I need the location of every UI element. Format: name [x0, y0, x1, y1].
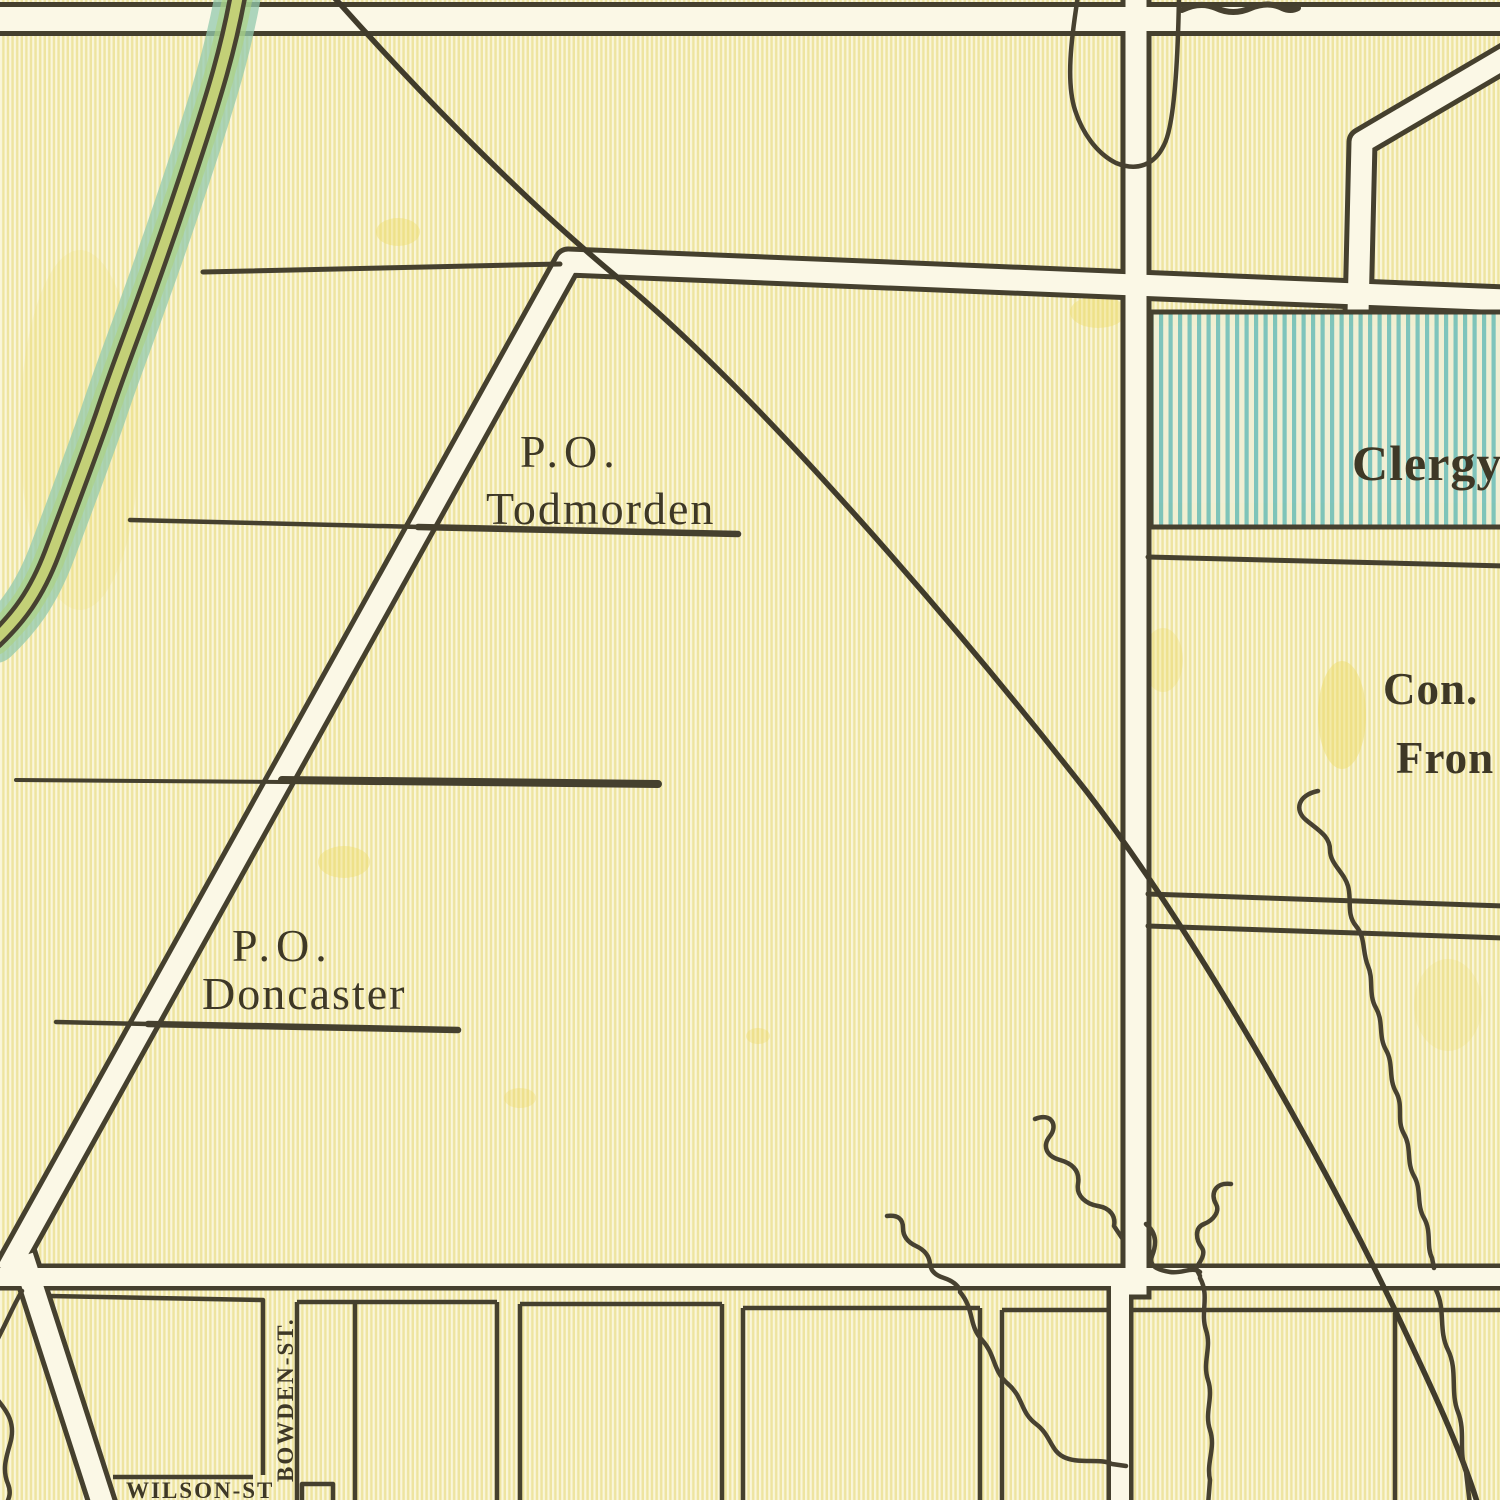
bowden-street-label: BOWDEN-ST. [273, 1317, 298, 1482]
doncaster-po-label: P.O. [232, 920, 333, 971]
lot-line [56, 1022, 148, 1024]
lot-line [16, 780, 284, 782]
clergy-reserve-block [1151, 312, 1500, 527]
paper-stain [1070, 296, 1126, 328]
concession-label-line1: Con. [1383, 664, 1478, 714]
paper-stain [746, 1028, 770, 1044]
township-map-image: P.O. Todmorden P.O. Doncaster Clergy Con… [0, 0, 1500, 1500]
concession-label-line2: Fron [1396, 733, 1494, 783]
clergy-block-stripes [1153, 312, 1500, 527]
map-canvas[interactable]: P.O. Todmorden P.O. Doncaster Clergy Con… [0, 0, 1500, 1500]
todmorden-po-label: P.O. [520, 426, 621, 477]
paper-stain [376, 218, 420, 246]
doncaster-name-label: Doncaster [202, 968, 406, 1019]
paper-stain [318, 846, 370, 878]
paper-stain [1414, 959, 1482, 1051]
paper-stain [504, 1088, 536, 1108]
lot-line-thick [282, 780, 658, 784]
wilson-street-label: WILSON-ST [126, 1478, 274, 1500]
paper-stain [1318, 661, 1366, 769]
todmorden-name-label: Todmorden [486, 483, 715, 534]
clergy-reserve-label: Clergy [1352, 435, 1500, 491]
